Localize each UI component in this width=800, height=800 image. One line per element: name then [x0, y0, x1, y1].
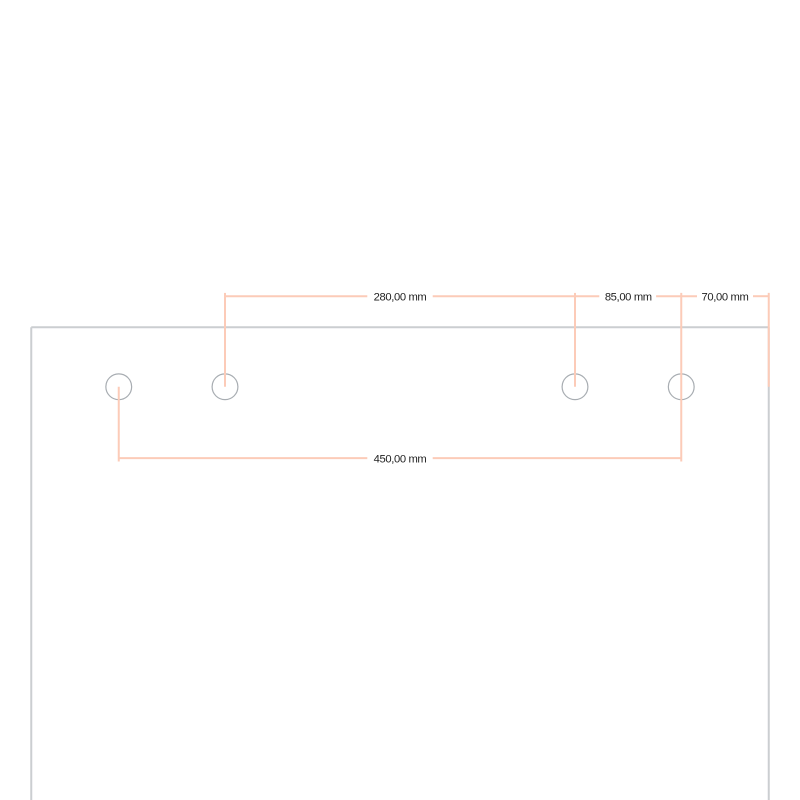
- svg-text:450,00 mm: 450,00 mm: [374, 453, 427, 465]
- svg-text:280,00 mm: 280,00 mm: [374, 292, 427, 304]
- svg-text:70,00 mm: 70,00 mm: [702, 292, 749, 304]
- svg-text:85,00 mm: 85,00 mm: [605, 292, 652, 304]
